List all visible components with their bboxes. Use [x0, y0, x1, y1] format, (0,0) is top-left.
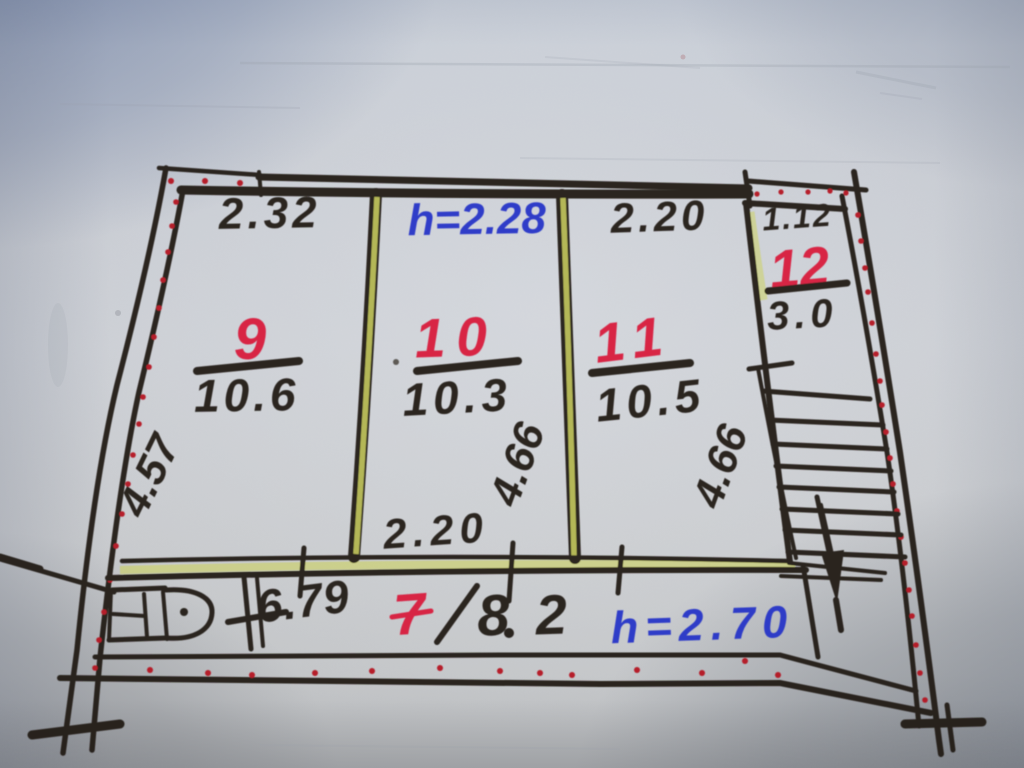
svg-text:3.0: 3.0	[766, 291, 839, 339]
svg-text:2.20: 2.20	[609, 191, 709, 241]
svg-text:1.12: 1.12	[761, 197, 834, 238]
svg-text:10.6: 10.6	[194, 368, 300, 422]
svg-text:2.32: 2.32	[218, 188, 321, 239]
svg-text:2.20: 2.20	[381, 503, 491, 557]
svg-text:10: 10	[414, 305, 499, 370]
svg-text:8: 8	[476, 582, 511, 648]
svg-text:10.3: 10.3	[401, 368, 513, 426]
svg-text:h=2.70: h=2.70	[610, 596, 795, 653]
svg-text:h=2.28: h=2.28	[407, 194, 547, 245]
svg-text:2: 2	[534, 582, 568, 646]
